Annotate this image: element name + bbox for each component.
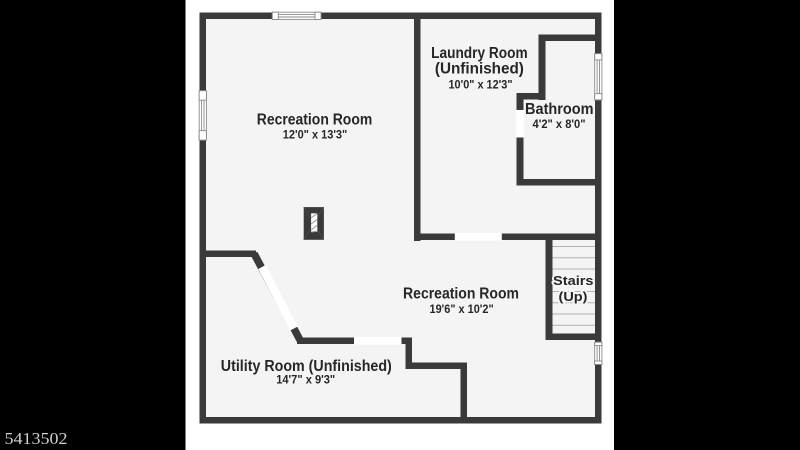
svg-text:(Up): (Up) — [559, 289, 588, 304]
svg-text:Laundry Room: Laundry Room — [431, 45, 528, 62]
svg-text:4'2" x 8'0": 4'2" x 8'0" — [533, 117, 586, 131]
svg-text:10'0" x 12'3": 10'0" x 12'3" — [449, 78, 513, 92]
svg-text:5413502: 5413502 — [5, 429, 68, 448]
svg-text:12'0" x 13'3": 12'0" x 13'3" — [283, 128, 348, 142]
svg-text:Recreation Room: Recreation Room — [403, 286, 519, 303]
svg-text:(Unfinished): (Unfinished) — [435, 60, 524, 77]
svg-text:14'7" x 9'3": 14'7" x 9'3" — [276, 373, 335, 387]
svg-text:Recreation Room: Recreation Room — [257, 111, 373, 128]
svg-text:19'6" x 10'2": 19'6" x 10'2" — [430, 302, 494, 316]
svg-text:Stairs: Stairs — [553, 273, 594, 288]
svg-text:Bathroom: Bathroom — [525, 101, 594, 118]
